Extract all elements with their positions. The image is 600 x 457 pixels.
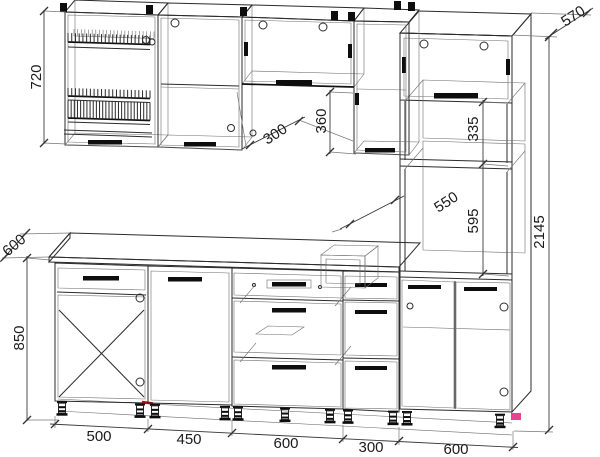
hinge (500, 303, 508, 311)
flip-door-handle (276, 80, 312, 85)
hinge-hardware (402, 57, 406, 73)
drawer-handle (355, 366, 387, 370)
hinge-hardware (355, 93, 359, 105)
base-cabinet-450 (148, 266, 232, 405)
dim-oven-niche-width: 550 (431, 188, 461, 216)
hinge-hardware (244, 42, 248, 56)
hinge-hardware (348, 44, 352, 58)
dim-tall-unit-depth: 570 (558, 2, 588, 30)
dimension-annotations: 720 600 850 300 360 335 550 595 570 2145… (0, 2, 593, 457)
door-handle (464, 287, 497, 291)
kitchen-cabinet-drawing: 720 600 850 300 360 335 550 595 570 2145… (0, 0, 600, 457)
drawer-handle (272, 282, 306, 287)
drawer-handle (272, 308, 306, 313)
wall-cabinet-flip-600 (242, 5, 364, 87)
dim-width-300: 300 (358, 439, 383, 456)
dimension-lines (0, 8, 593, 448)
door-handle (88, 140, 122, 145)
flip-door-handle (434, 93, 478, 99)
dim-width-600: 600 (273, 435, 298, 452)
hinge-hardware (506, 59, 510, 75)
dim-gap-under-top-cabinet: 360 (313, 108, 330, 133)
dim-wall-cabinet-height: 720 (28, 64, 45, 89)
drawer-handle (83, 276, 119, 281)
hinge (500, 388, 508, 396)
wall-cabinet-450 (158, 3, 252, 150)
extension-lines (2, 11, 591, 450)
drawer-handle (355, 310, 387, 314)
door-handle (408, 285, 441, 289)
wall-cabinet-dishrack (64, 0, 168, 147)
drawing-canvas: 720 600 850 300 360 335 550 595 570 2145… (0, 0, 600, 457)
dimension-ticks (1, 7, 591, 451)
dim-width-500: 500 (86, 428, 111, 445)
dim-width-600-tall: 600 (443, 441, 468, 457)
pink-marker (511, 413, 521, 420)
door-handle (365, 148, 395, 153)
base-cabinet-500 (55, 263, 153, 404)
countertop (49, 233, 420, 272)
dim-base-height: 850 (11, 325, 28, 350)
hinge (136, 378, 144, 386)
base-cabinet-600-drawers (232, 268, 351, 409)
dim-oven-niche-height: 595 (465, 208, 482, 233)
drawer-handle (272, 365, 306, 370)
dim-wall-cabinet-depth: 300 (260, 120, 290, 148)
door-handle (168, 277, 202, 282)
dim-width-450: 450 (176, 431, 201, 448)
dim-total-height: 2145 (531, 215, 548, 248)
door-handle (184, 142, 216, 147)
dim-microwave-niche-height: 335 (465, 116, 482, 141)
